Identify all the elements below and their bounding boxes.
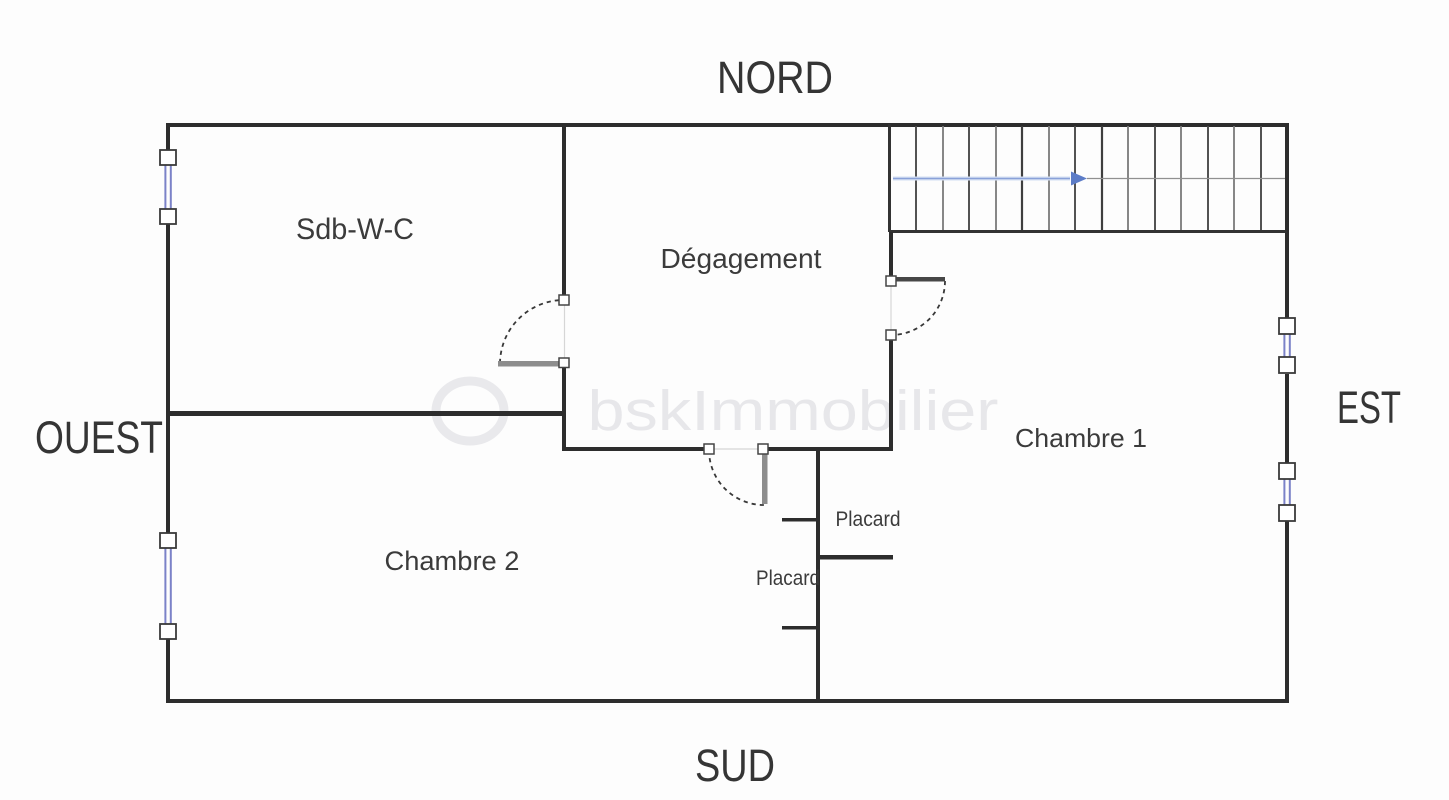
svg-text:Dégagement: Dégagement bbox=[661, 243, 822, 274]
svg-text:Chambre 1: Chambre 1 bbox=[1015, 423, 1147, 453]
svg-text:SUD: SUD bbox=[695, 740, 775, 791]
svg-text:Placard: Placard bbox=[836, 508, 901, 531]
svg-text:Chambre 2: Chambre 2 bbox=[385, 546, 520, 576]
svg-text:NORD: NORD bbox=[717, 52, 833, 103]
svg-text:Placard: Placard bbox=[756, 567, 820, 590]
svg-text:OUEST: OUEST bbox=[35, 412, 163, 463]
svg-text:bskImmobilier: bskImmobilier bbox=[588, 379, 999, 443]
svg-text:Sdb-W-C: Sdb-W-C bbox=[296, 213, 414, 246]
svg-text:EST: EST bbox=[1337, 382, 1401, 433]
